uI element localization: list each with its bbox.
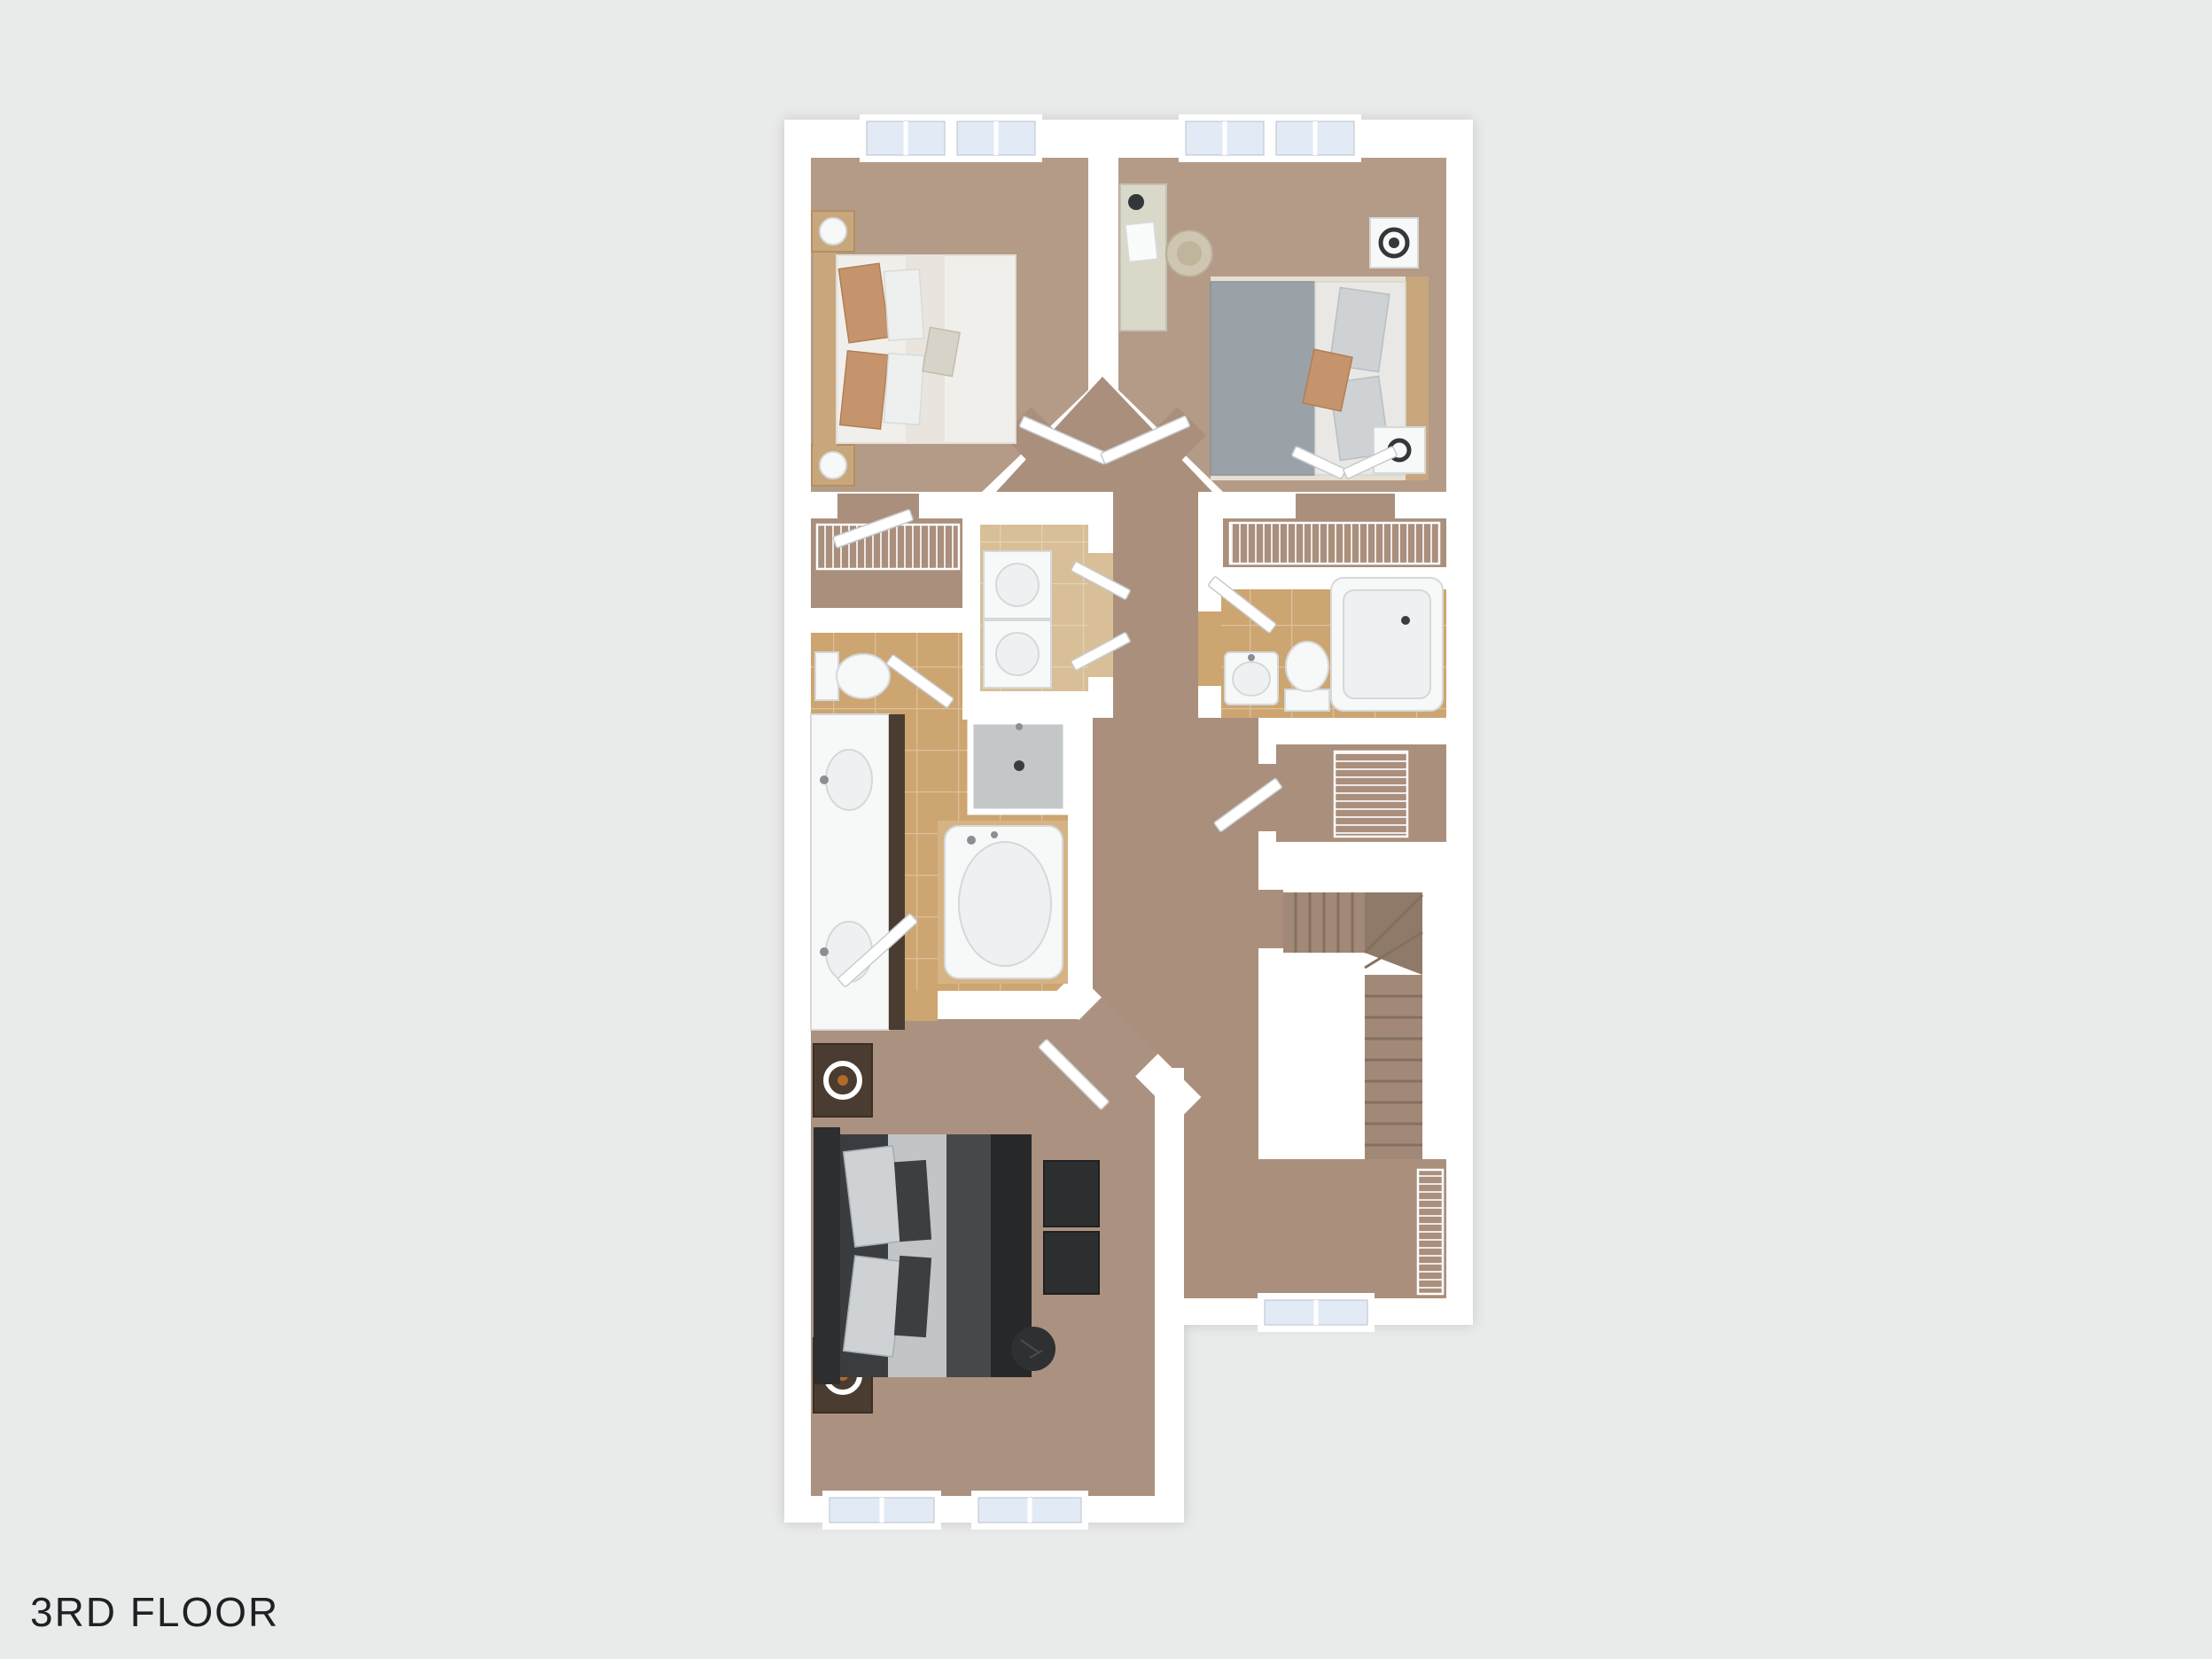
bathroom-2-doorway [1198, 611, 1221, 686]
pillow [844, 1256, 905, 1357]
toilet [837, 654, 890, 698]
toilet-tank [1285, 689, 1329, 711]
faucet [820, 947, 829, 956]
window [950, 114, 1042, 162]
desk-chair-seat [1177, 241, 1202, 266]
faucet [1248, 654, 1255, 661]
bed-gray-duvet [1211, 282, 1315, 475]
bathtub-basin [1344, 590, 1430, 698]
shower-head [1016, 723, 1023, 730]
washer-door [996, 564, 1039, 606]
bench-ottoman [1044, 1161, 1099, 1227]
window [860, 114, 952, 162]
closet-d-wire-shelf [1418, 1170, 1443, 1294]
stairs-lower-run [1365, 975, 1422, 1159]
tub-faucet [967, 836, 976, 845]
toilet-tank [815, 652, 838, 700]
nightstand-tray [820, 452, 846, 479]
stairs-doorway [1255, 890, 1283, 948]
sink-basin [1233, 662, 1270, 696]
floor-title: 3RD FLOOR [30, 1588, 279, 1636]
pillow [844, 1146, 905, 1247]
dark-pillow [894, 1256, 931, 1337]
closet-b-wire-shelf [1230, 523, 1439, 564]
tub-drain [1401, 616, 1410, 625]
decor [837, 1075, 848, 1086]
window [1269, 114, 1361, 162]
garden-tub-basin [959, 842, 1051, 966]
dark-pillow [894, 1160, 931, 1242]
vanity-cabinet-front [889, 714, 905, 1030]
window [1179, 114, 1271, 162]
stairwell-side-wall [1422, 892, 1446, 1159]
bed-duvet [946, 1134, 991, 1377]
window [971, 1491, 1088, 1530]
desk-lamp [1128, 194, 1144, 210]
dryer-door [996, 633, 1039, 675]
laundry-closet [984, 551, 1051, 688]
pillow [884, 269, 923, 341]
laptop [1125, 222, 1157, 261]
faucet [820, 775, 829, 784]
toilet [1286, 642, 1328, 691]
closet-c-wire-shelf [1335, 752, 1407, 837]
nightstand-tray [820, 218, 846, 245]
pillow [884, 354, 923, 425]
tub-handle [991, 831, 998, 838]
bed-headboard [814, 1127, 840, 1384]
bed-headboard [814, 253, 837, 446]
closet-b-doorway [1296, 494, 1395, 522]
window [1258, 1293, 1375, 1332]
table-lamp-base [1389, 238, 1399, 248]
bench-ottoman [1044, 1232, 1099, 1294]
sink [826, 750, 872, 810]
pillow [840, 351, 889, 429]
floorplan-3d-render [0, 0, 2212, 1659]
hallway-corridor-floor [1113, 492, 1198, 718]
nightstand [1374, 427, 1425, 473]
shower-drain [1014, 760, 1024, 771]
window [822, 1491, 941, 1530]
